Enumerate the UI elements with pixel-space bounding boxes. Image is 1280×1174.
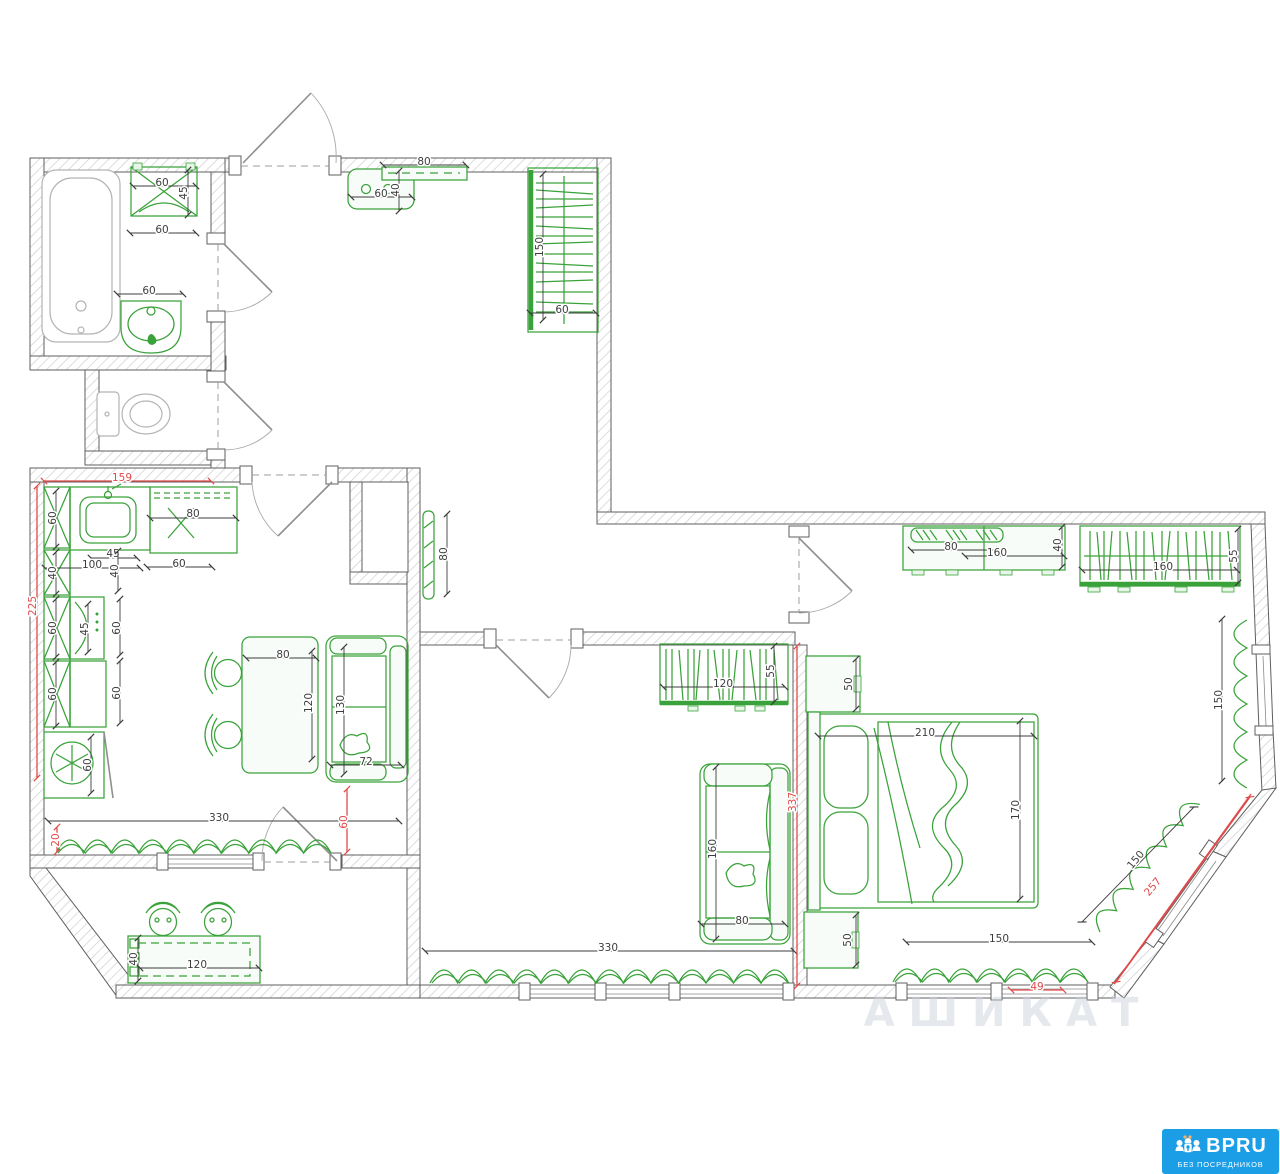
dim-hall-wardrobe-length: 150 xyxy=(534,237,546,257)
dim-kitchen-top-wall: 159 xyxy=(112,472,132,484)
dim-washer-width: 60 xyxy=(155,177,168,189)
living-room-door xyxy=(484,629,583,698)
bathtub-icon xyxy=(42,170,120,342)
bedroom-door xyxy=(789,526,852,623)
dim-kitchen-cabinet-b: 40 xyxy=(47,566,59,579)
dim-dining-table-width: 80 xyxy=(276,649,289,661)
dim-bedroom-dresser-depth: 40 xyxy=(1052,538,1064,551)
living-room-window xyxy=(519,983,794,1000)
dim-washer-clearance: 60 xyxy=(155,224,168,236)
bedroom-curtains-icon xyxy=(893,620,1247,982)
dim-bedroom-dresser-length: 160 xyxy=(987,547,1007,559)
bar-stool-icon xyxy=(146,902,235,935)
toilet-door xyxy=(207,371,272,460)
dim-bar-table-depth: 40 xyxy=(128,952,140,965)
corridor-radiator-icon xyxy=(423,511,434,599)
dim-bed-width: 210 xyxy=(915,727,935,739)
dim-bedroom-wardrobe-length: 160 xyxy=(1153,561,1173,573)
dim-bar-table-length: 120 xyxy=(187,959,207,971)
dim-kitchen-oven-width: 45 xyxy=(79,622,91,635)
bedroom-dresser-icon xyxy=(903,526,1065,575)
dim-bedroom-diagonal-window: 150 xyxy=(1125,848,1147,871)
dim-bedroom-window-wall: 150 xyxy=(989,933,1009,945)
balcony-door xyxy=(253,807,341,870)
entry-door xyxy=(229,93,341,175)
living-room xyxy=(430,644,790,983)
ventilation-shaft xyxy=(362,482,408,572)
dim-bookshelf-length: 120 xyxy=(713,678,733,690)
dim-kitchen-counter-60: 60 xyxy=(172,558,185,570)
dim-loveseat-depth: 72 xyxy=(359,756,372,768)
logo-tagline-text: БЕЗ ПОСРЕДНИКОВ xyxy=(1177,1160,1263,1169)
dim-sofa-depth: 80 xyxy=(735,915,748,927)
dim-hall-wardrobe-depth: 60 xyxy=(555,304,568,316)
bpru-logo[interactable]: BPRU БЕЗ ПОСРЕДНИКОВ xyxy=(1162,1129,1279,1174)
bedroom-diagonal-window xyxy=(1145,840,1226,948)
dim-fridge-width: 60 xyxy=(82,758,94,771)
dim-kitchen-worktop-b: 60 xyxy=(111,686,123,699)
dim-bedroom-west-wall: 337 xyxy=(787,792,799,812)
toilet-icon xyxy=(97,392,170,436)
logo-brand-text: BPRU xyxy=(1206,1135,1267,1158)
floor-plan-svg: АШИКАТ 604560608060401506080608045100406… xyxy=(0,0,1280,1174)
dim-bed-length: 170 xyxy=(1010,800,1022,820)
hall-bench-icon xyxy=(348,167,467,209)
kitchen-door xyxy=(240,466,338,536)
kitchen-curtain-icon xyxy=(56,840,331,853)
dim-kitchen-hob-width: 80 xyxy=(186,508,199,520)
bathroom xyxy=(42,163,197,353)
dim-kitchen-worktop-a: 60 xyxy=(111,621,123,634)
dim-kitchen-cabinet-c: 60 xyxy=(47,621,59,634)
dim-living-window-wall: 330 xyxy=(598,942,618,954)
dim-kitchen-cabinet-a: 60 xyxy=(47,511,59,524)
dim-loveseat-length: 130 xyxy=(335,695,347,715)
dim-kitchen-cabinet-d: 60 xyxy=(47,687,59,700)
bedroom-wardrobe-icon xyxy=(1080,526,1240,592)
dining-chair-icon xyxy=(205,652,242,756)
floor-plan-page: АШИКАТ 604560608060401506080608045100406… xyxy=(0,0,1280,1174)
dim-bedroom-window-offset: 49 xyxy=(1030,981,1043,993)
kitchen-hob-icon xyxy=(150,487,237,553)
dim-hall-bench-width: 60 xyxy=(374,188,387,200)
kitchen-sink-icon xyxy=(70,484,150,550)
dim-corridor-radiator: 80 xyxy=(438,547,450,560)
walls xyxy=(30,158,1276,998)
dim-bookshelf-depth: 55 xyxy=(765,664,777,677)
bathroom-door xyxy=(207,233,272,322)
bedroom-side-window xyxy=(1252,645,1273,735)
bathroom-sink-icon xyxy=(121,301,181,353)
dim-hall-shelf-width: 80 xyxy=(417,156,430,168)
dim-hall-bench-depth: 40 xyxy=(390,183,402,196)
dim-kitchen-counter-100: 100 xyxy=(82,559,102,571)
watermark-text: АШИКАТ xyxy=(864,990,1153,1036)
dim-bedroom-diagonal-wall: 257 xyxy=(1142,875,1164,898)
kitchen-cabinet-icon xyxy=(70,661,106,727)
dim-sofa-length: 160 xyxy=(707,839,719,859)
dim-balcony-door-width: 60 xyxy=(338,815,350,828)
people-lock-icon xyxy=(1174,1135,1202,1157)
dim-bedroom-right-window: 150 xyxy=(1213,690,1225,710)
dim-bedroom-dresser-a: 80 xyxy=(944,541,957,553)
windows xyxy=(157,645,1273,1000)
dim-bath-sink-width: 60 xyxy=(142,285,155,297)
dim-kitchen-window-offset: 20 xyxy=(50,833,62,846)
kitchen-window xyxy=(157,853,258,870)
dim-dining-table-length: 120 xyxy=(303,693,315,713)
dim-bedroom-wardrobe-depth: 55 xyxy=(1228,549,1240,562)
living-curtain-icon xyxy=(430,970,789,983)
dim-nightstand-a: 50 xyxy=(843,677,855,690)
toilet-room xyxy=(97,392,170,436)
fridge-icon xyxy=(44,732,113,798)
dim-kitchen-counter-40: 40 xyxy=(109,564,121,577)
dim-kitchen-window-wall: 330 xyxy=(209,812,229,824)
dim-washer-depth: 45 xyxy=(178,186,190,199)
bed-icon xyxy=(808,712,1038,910)
dim-nightstand-b: 50 xyxy=(842,933,854,946)
dim-kitchen-left-wall: 225 xyxy=(27,596,39,616)
